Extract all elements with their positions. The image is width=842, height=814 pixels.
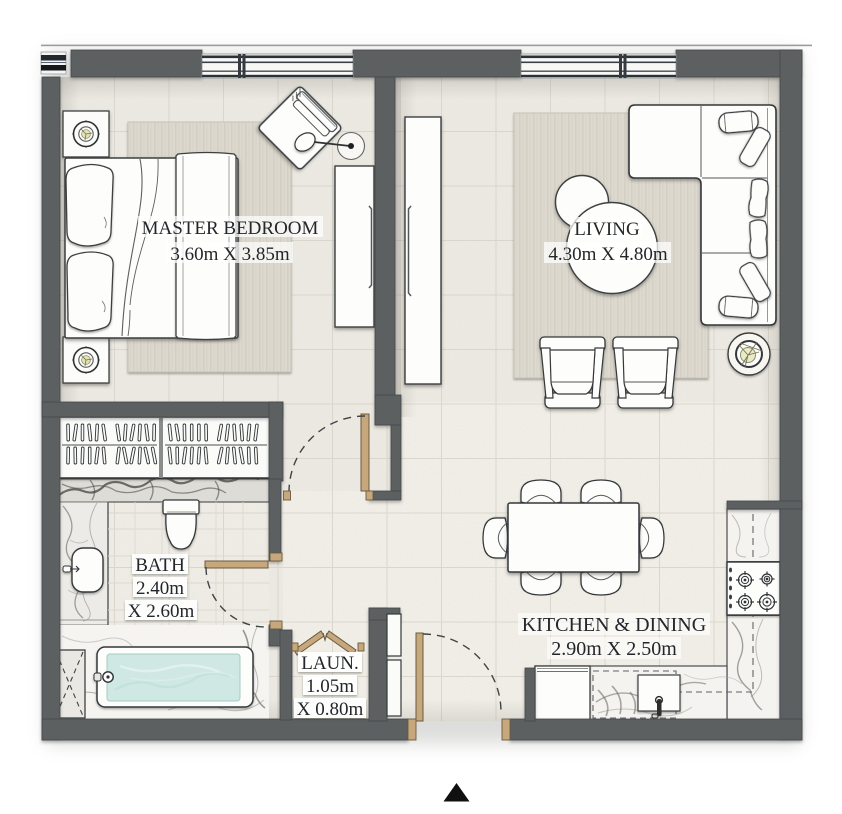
svg-text:MASTER BEDROOM: MASTER BEDROOM: [142, 218, 319, 239]
svg-text:LIVING: LIVING: [574, 219, 640, 240]
svg-text:BATH: BATH: [135, 555, 185, 576]
svg-text:LAUN.: LAUN.: [301, 653, 359, 674]
svg-text:KITCHEN & DINING: KITCHEN & DINING: [522, 614, 706, 636]
svg-text:X 0.80m: X 0.80m: [297, 699, 364, 720]
svg-text:3.60m X 3.85m: 3.60m X 3.85m: [170, 244, 290, 265]
svg-text:2.90m X 2.50m: 2.90m X 2.50m: [551, 638, 677, 660]
svg-text:1.05m: 1.05m: [306, 676, 354, 697]
svg-text:4.30m X 4.80m: 4.30m X 4.80m: [548, 244, 668, 265]
svg-text:2.40m: 2.40m: [136, 578, 184, 599]
svg-text:X 2.60m: X 2.60m: [128, 601, 195, 622]
